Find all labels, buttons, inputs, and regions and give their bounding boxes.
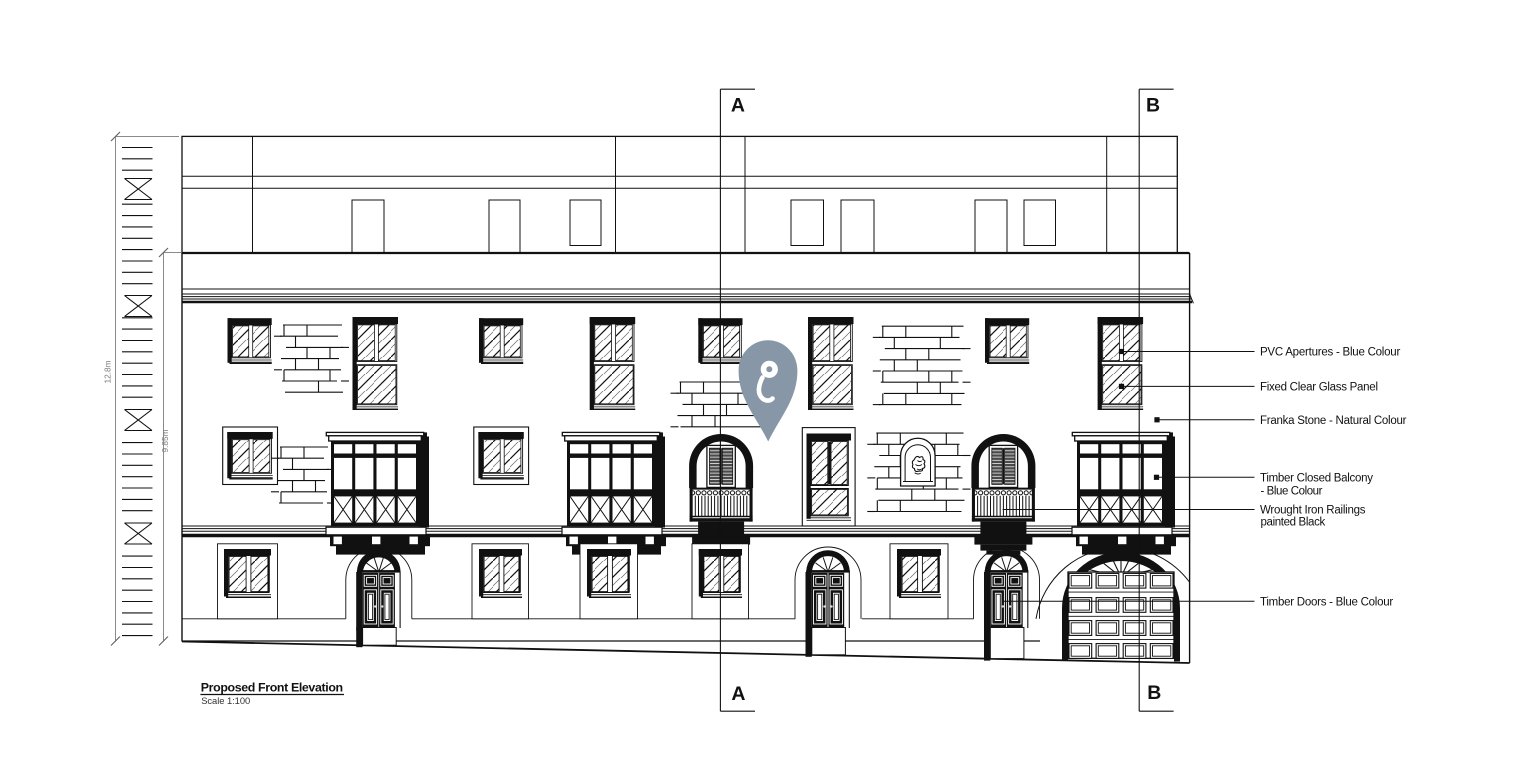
svg-text:12.8m: 12.8m xyxy=(103,360,113,383)
svg-text:Timber Closed Balcony: Timber Closed Balcony xyxy=(1260,472,1373,484)
svg-text:B: B xyxy=(1147,682,1161,704)
svg-text:B: B xyxy=(1146,95,1160,117)
svg-text:Proposed Front Elevation: Proposed Front Elevation xyxy=(201,680,343,694)
svg-text:Franka Stone - Natural Colour: Franka Stone - Natural Colour xyxy=(1260,415,1407,427)
svg-text:- Blue Colour: - Blue Colour xyxy=(1261,486,1323,498)
svg-text:painted Black: painted Black xyxy=(1261,517,1326,529)
svg-text:9.85m: 9.85m xyxy=(160,429,170,452)
svg-text:A: A xyxy=(731,94,745,116)
svg-text:A: A xyxy=(731,683,745,705)
svg-text:Fixed Clear Glass Panel: Fixed Clear Glass Panel xyxy=(1260,382,1378,394)
svg-text:PVC Apertures - Blue Colour: PVC Apertures - Blue Colour xyxy=(1260,347,1400,359)
svg-text:Wrought Iron Railings: Wrought Iron Railings xyxy=(1260,505,1366,517)
svg-text:Scale 1:100: Scale 1:100 xyxy=(201,695,250,706)
svg-text:Timber Doors - Blue Colour: Timber Doors - Blue Colour xyxy=(1260,596,1393,608)
